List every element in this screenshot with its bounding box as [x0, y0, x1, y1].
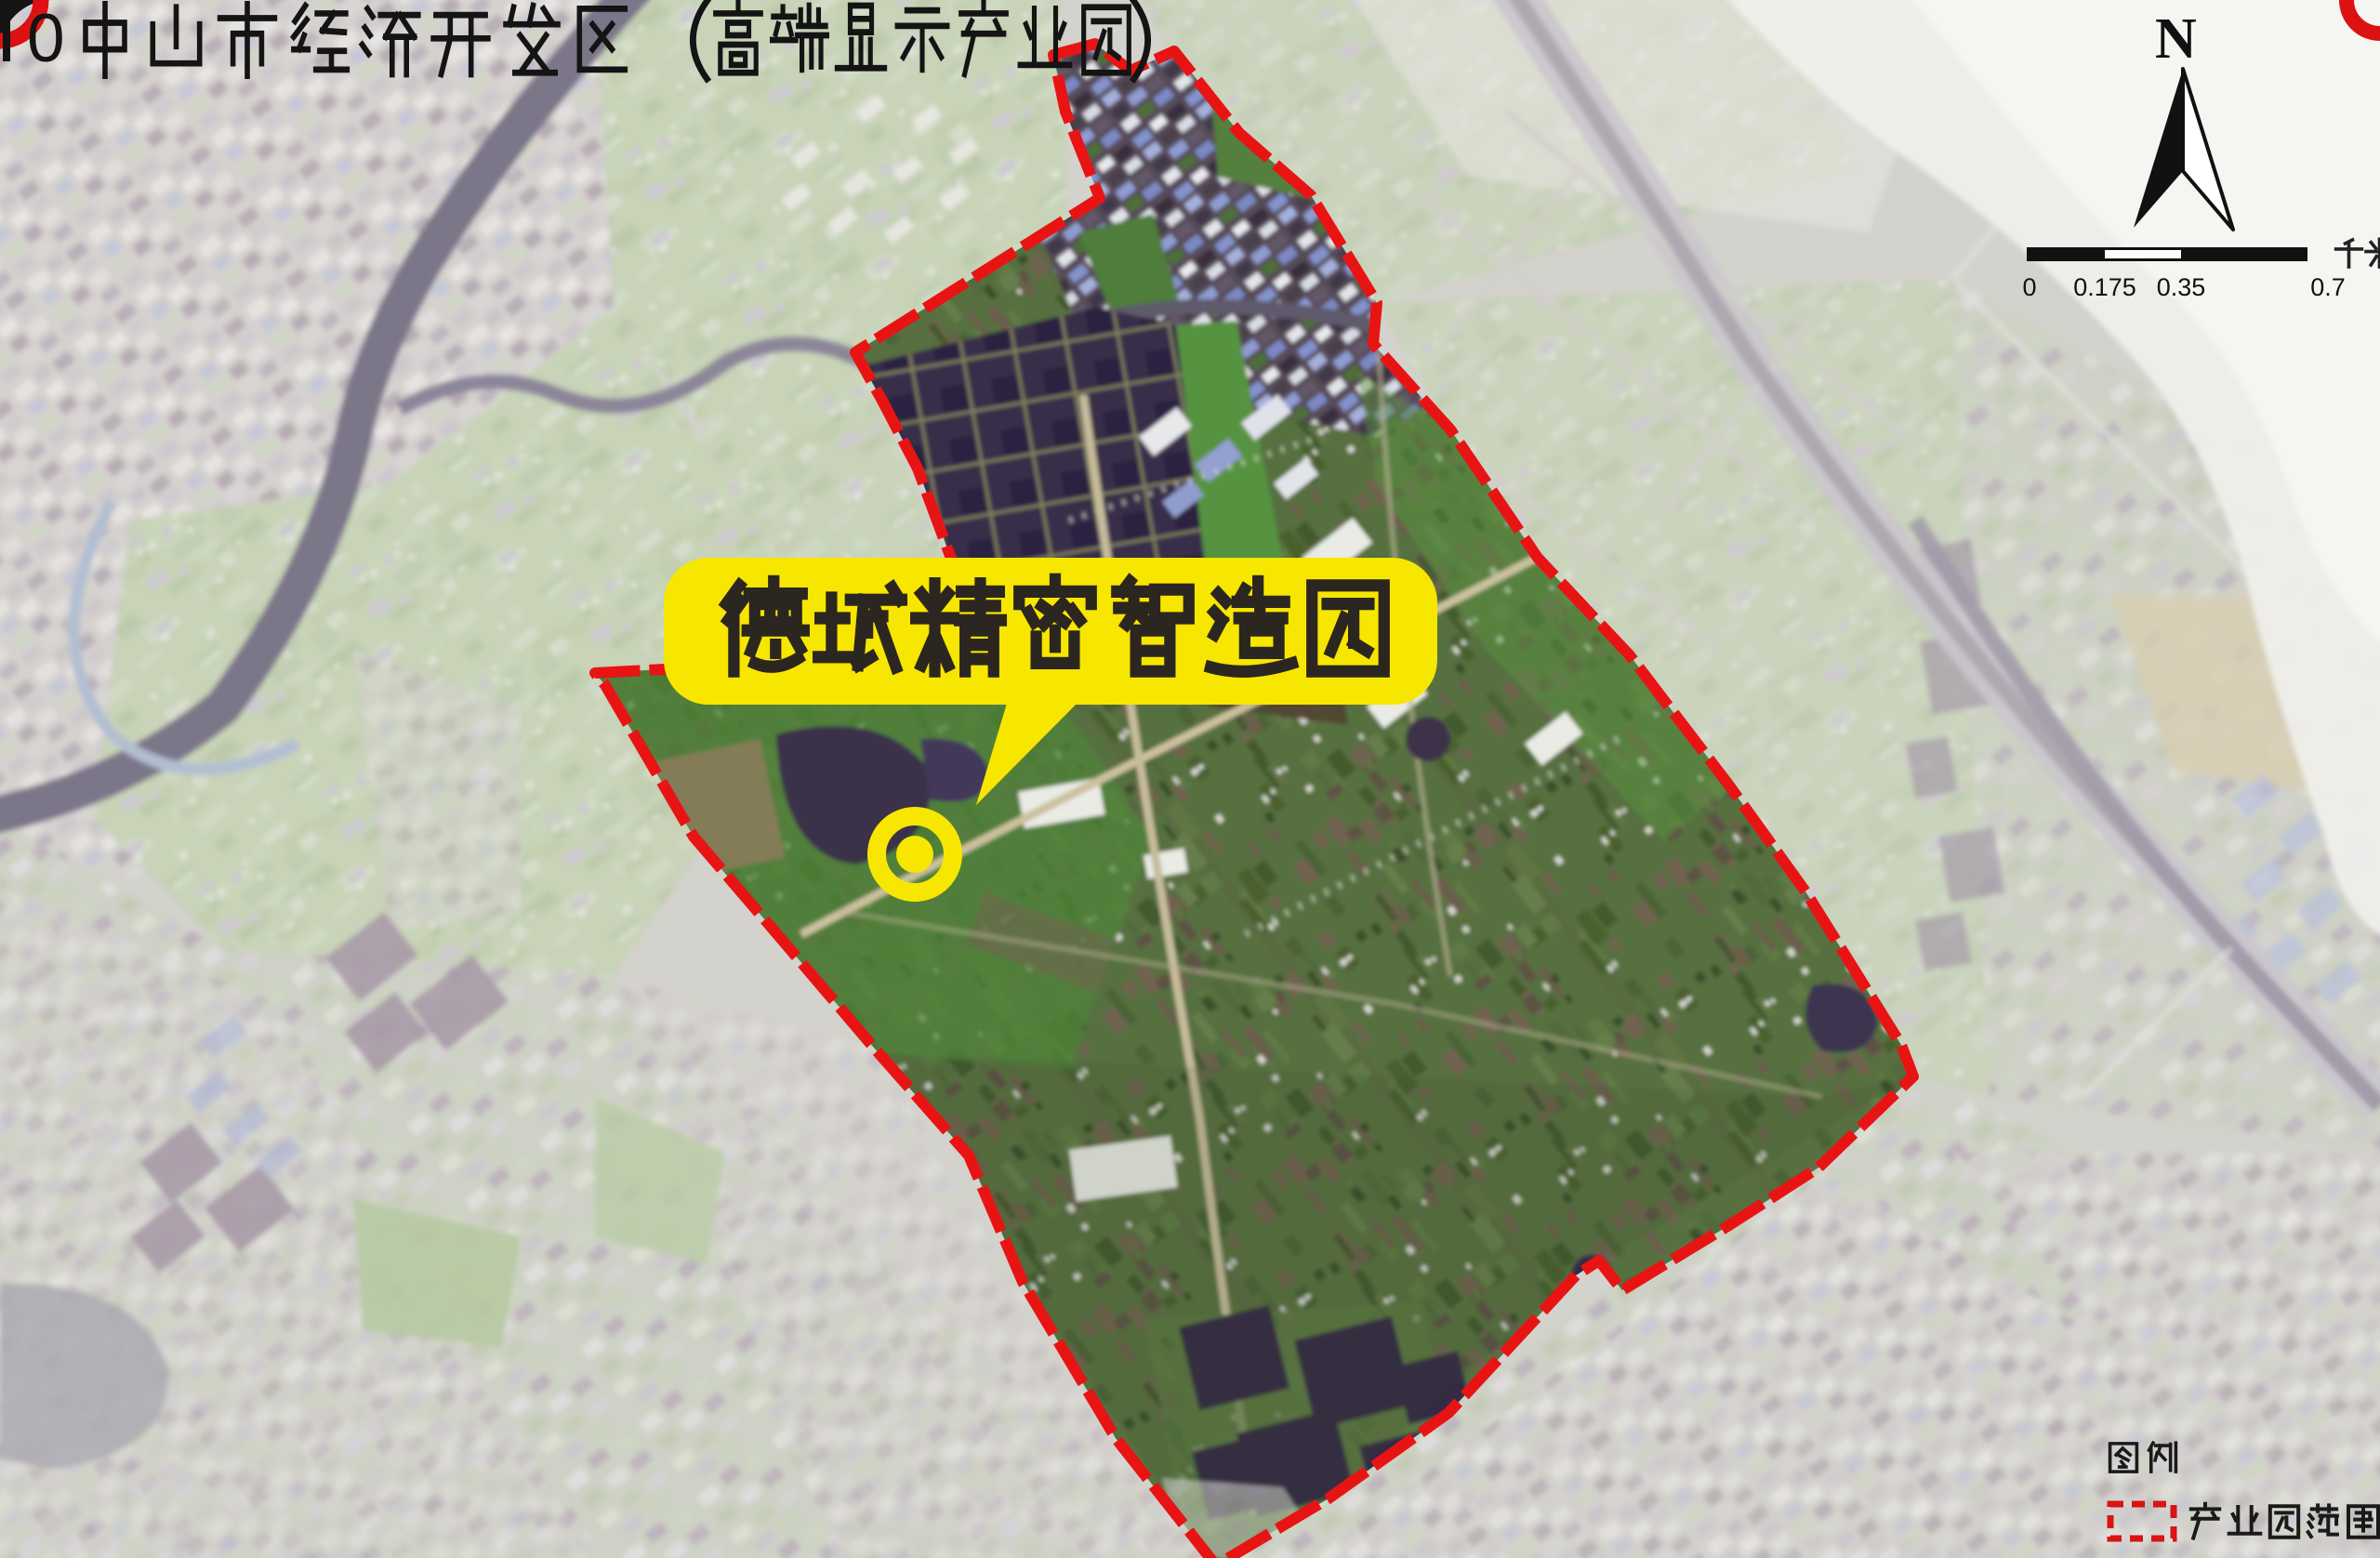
svg-text:N: N [2155, 7, 2197, 71]
svg-text:0: 0 [27, 1, 65, 76]
svg-text:0.35: 0.35 [2157, 273, 2206, 301]
svg-text:0.7: 0.7 [2310, 273, 2346, 301]
svg-text:0.175: 0.175 [2073, 273, 2136, 301]
svg-text:0: 0 [2022, 273, 2036, 301]
